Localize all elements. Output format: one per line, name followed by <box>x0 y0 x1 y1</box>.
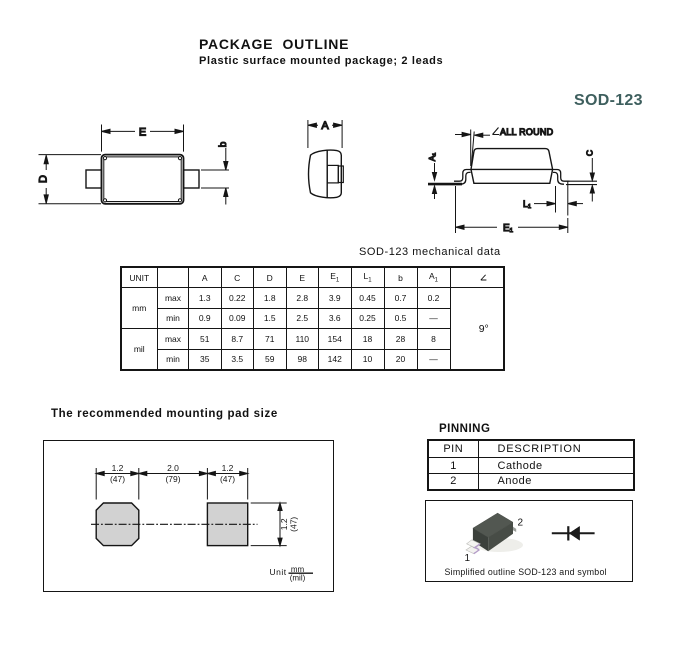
svg-text:2: 2 <box>518 518 524 529</box>
svg-text:Simplified outline SOD-123 and: Simplified outline SOD-123 and symbol <box>445 567 607 577</box>
svg-text:1: 1 <box>465 553 471 564</box>
